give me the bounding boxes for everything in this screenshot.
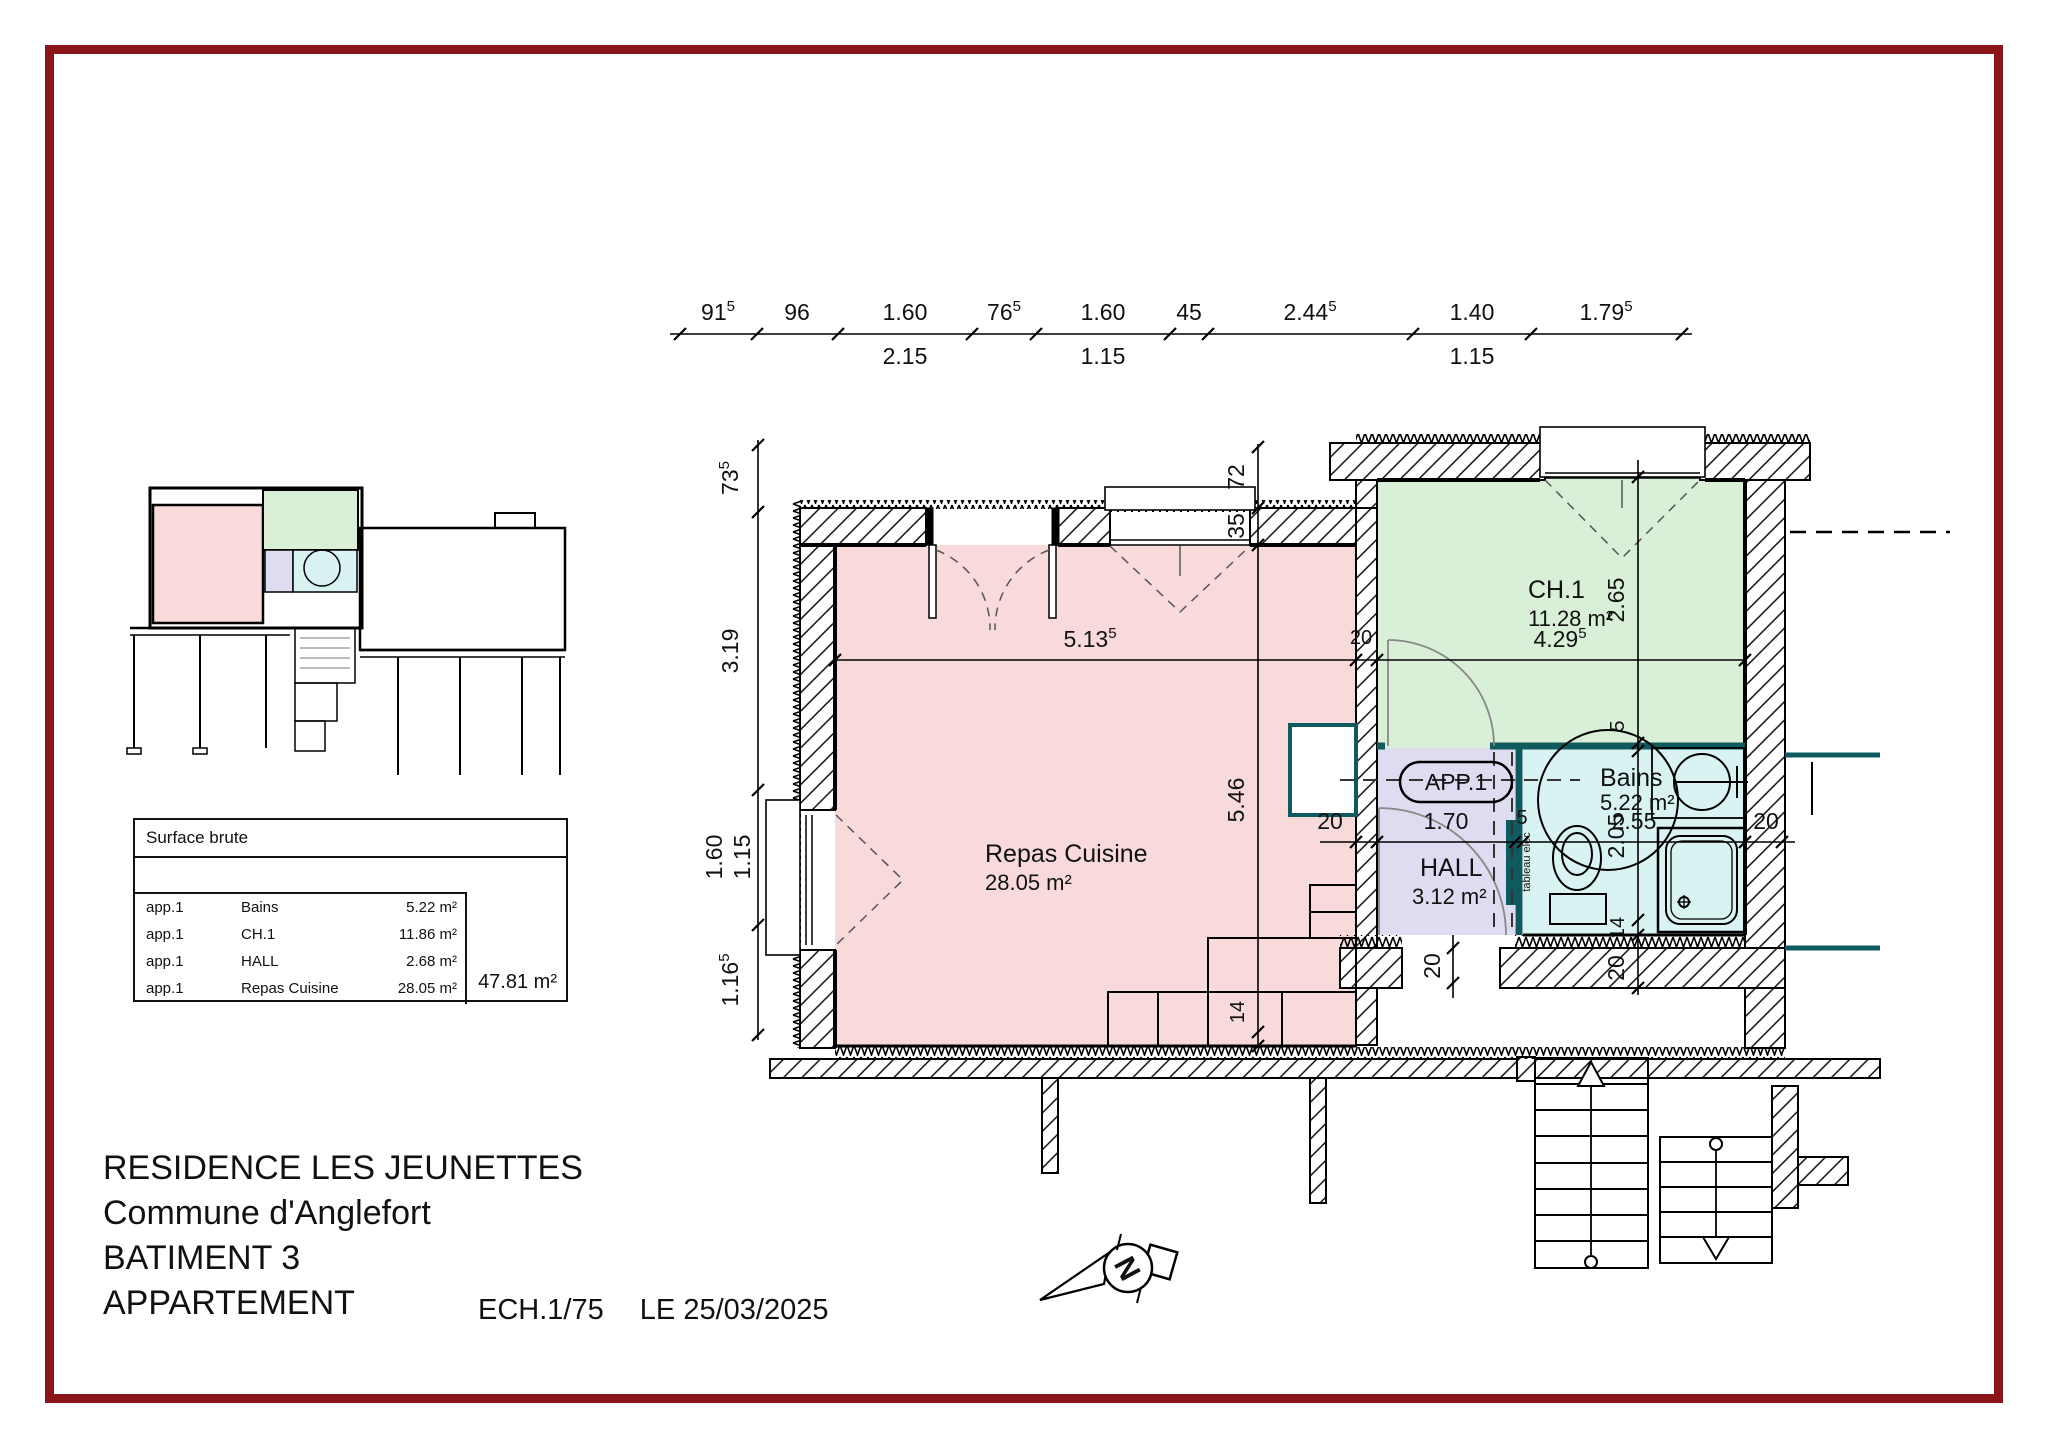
north-arrow-needle bbox=[1040, 1252, 1110, 1300]
table-row: app.1 Repas Cuisine 28.05 m² bbox=[135, 975, 465, 1002]
svg-text:1.15: 1.15 bbox=[1450, 343, 1495, 369]
tableau-elec-label: tableau elec bbox=[1521, 832, 1533, 892]
dim-b20: 20 bbox=[1603, 955, 1629, 981]
dimension-entry bbox=[1447, 935, 1459, 998]
svg-text:1.40: 1.40 bbox=[1450, 299, 1495, 325]
stair-down-arrow bbox=[1703, 1237, 1729, 1259]
apartment-tag-label: APP.1 bbox=[1425, 769, 1487, 795]
svg-text:915: 915 bbox=[701, 298, 735, 325]
svg-text:1.15: 1.15 bbox=[1081, 343, 1126, 369]
dim-wall-20: 20 bbox=[1350, 627, 1372, 649]
svg-text:2.15: 2.15 bbox=[883, 343, 928, 369]
dim-part-5: 5 bbox=[1516, 807, 1527, 829]
label-ch1-area: 11.28 m² bbox=[1528, 606, 1613, 631]
cell-area: 2.68 m² bbox=[369, 948, 465, 975]
commune: Commune d'Anglefort bbox=[103, 1191, 583, 1236]
dim-hall-width: 1.70 bbox=[1424, 808, 1469, 834]
svg-text:45: 45 bbox=[1176, 299, 1202, 325]
surface-table-total: 47.81 m² bbox=[478, 971, 557, 994]
stair-flight-down bbox=[1660, 1137, 1772, 1263]
cell-area: 11.86 m² bbox=[369, 921, 465, 948]
surface-table-body: app.1 Bains 5.22 m² app.1 CH.1 11.86 m² … bbox=[135, 892, 467, 1004]
building: BATIMENT 3 bbox=[103, 1236, 583, 1281]
svg-text:1.795: 1.795 bbox=[1579, 298, 1632, 325]
svg-text:3.19: 3.19 bbox=[717, 629, 743, 674]
dim-p5: 5 bbox=[1607, 720, 1629, 731]
dim-counter-14: 14 bbox=[1227, 1001, 1249, 1023]
dim-right-20: 20 bbox=[1753, 808, 1779, 834]
cell-apt: app.1 bbox=[135, 948, 241, 975]
label-hall-name: HALL bbox=[1420, 854, 1483, 882]
overview-room-hall bbox=[265, 550, 293, 592]
table-row: app.1 CH.1 11.86 m² bbox=[135, 921, 465, 948]
svg-text:1.15: 1.15 bbox=[729, 835, 755, 880]
dim-repas-height: 5.46 bbox=[1223, 778, 1249, 823]
scale-and-date: ECH.1/75 LE 25/03/2025 bbox=[478, 1294, 856, 1327]
stairs bbox=[1535, 1058, 1772, 1268]
table-row: app.1 Bains 5.22 m² bbox=[135, 894, 465, 921]
svg-text:765: 765 bbox=[987, 298, 1021, 325]
cell-room: Repas Cuisine bbox=[241, 975, 369, 1002]
cell-room: Bains bbox=[241, 894, 369, 921]
scale-label: ECH.1/75 bbox=[478, 1294, 604, 1326]
cell-area: 5.22 m² bbox=[369, 894, 465, 921]
overview-plan bbox=[127, 488, 565, 775]
cell-apt: app.1 bbox=[135, 975, 241, 1002]
north-arrow: N bbox=[1040, 1234, 1177, 1303]
surface-table: Surface brute app.1 Bains 5.22 m² app.1 … bbox=[133, 818, 568, 1002]
cell-apt: app.1 bbox=[135, 894, 241, 921]
date-label: LE 25/03/2025 bbox=[640, 1294, 829, 1326]
label-repas-name: Repas Cuisine bbox=[985, 840, 1148, 868]
dimension-chain-left bbox=[752, 439, 764, 1041]
label-repas-area: 28.05 m² bbox=[985, 870, 1072, 895]
svg-text:96: 96 bbox=[784, 299, 810, 325]
overview-room-repas bbox=[153, 505, 263, 623]
dim-entry-20: 20 bbox=[1419, 953, 1445, 979]
cell-area: 28.05 m² bbox=[369, 975, 465, 1002]
svg-text:1.60: 1.60 bbox=[701, 835, 727, 880]
dimension-chain-top bbox=[670, 328, 1692, 340]
niche bbox=[1290, 725, 1356, 815]
dim-hall-wall-20: 20 bbox=[1317, 808, 1343, 834]
label-ch1-name: CH.1 bbox=[1528, 576, 1585, 604]
room-repas-fill bbox=[835, 545, 1356, 1045]
svg-text:735: 735 bbox=[716, 461, 743, 495]
cell-apt: app.1 bbox=[135, 921, 241, 948]
cell-room: HALL bbox=[241, 948, 369, 975]
table-row: app.1 HALL 2.68 m² bbox=[135, 948, 465, 975]
project-title: RESIDENCE LES JEUNETTES bbox=[103, 1146, 583, 1191]
stair-flight-up bbox=[1535, 1058, 1648, 1268]
surface-table-title: Surface brute bbox=[135, 820, 566, 858]
label-bains-area: 5.22 m² bbox=[1600, 790, 1675, 815]
dim-14a: 14 bbox=[1607, 917, 1629, 939]
label-hall-area: 3.12 m² bbox=[1412, 884, 1487, 909]
svg-text:2.445: 2.445 bbox=[1283, 298, 1336, 325]
cell-room: CH.1 bbox=[241, 921, 369, 948]
svg-text:1.60: 1.60 bbox=[883, 299, 928, 325]
dim-win-35: 35 bbox=[1223, 513, 1249, 539]
svg-text:1.165: 1.165 bbox=[716, 953, 743, 1006]
overview-room-ch1 bbox=[263, 490, 358, 550]
svg-text:1.60: 1.60 bbox=[1081, 299, 1126, 325]
label-bains-name: Bains bbox=[1600, 764, 1663, 792]
dim-win-72: 72 bbox=[1223, 464, 1249, 490]
dimension-chain-left-labels: 735 3.19 1.60 1.15 1.165 bbox=[701, 461, 755, 1007]
